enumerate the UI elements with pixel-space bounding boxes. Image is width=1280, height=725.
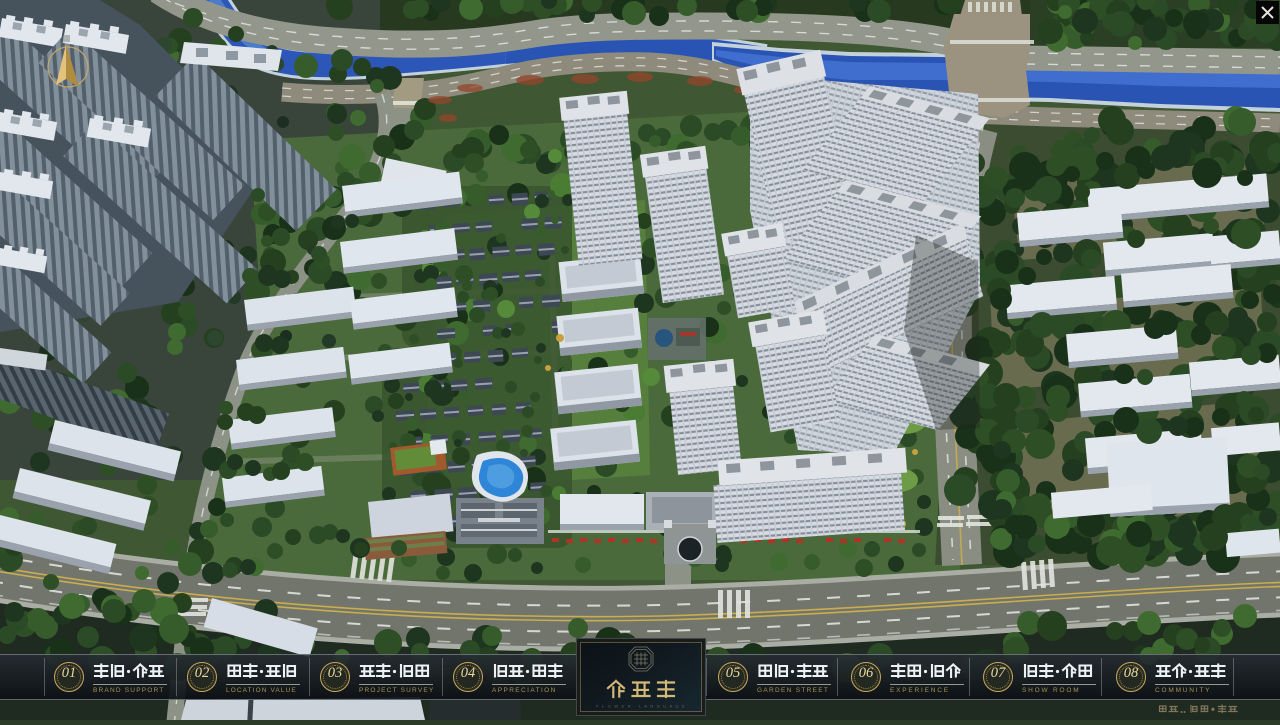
svg-text:F L O W E R · L A N G U A G E: F L O W E R · L A N G U A G E [596,704,686,709]
